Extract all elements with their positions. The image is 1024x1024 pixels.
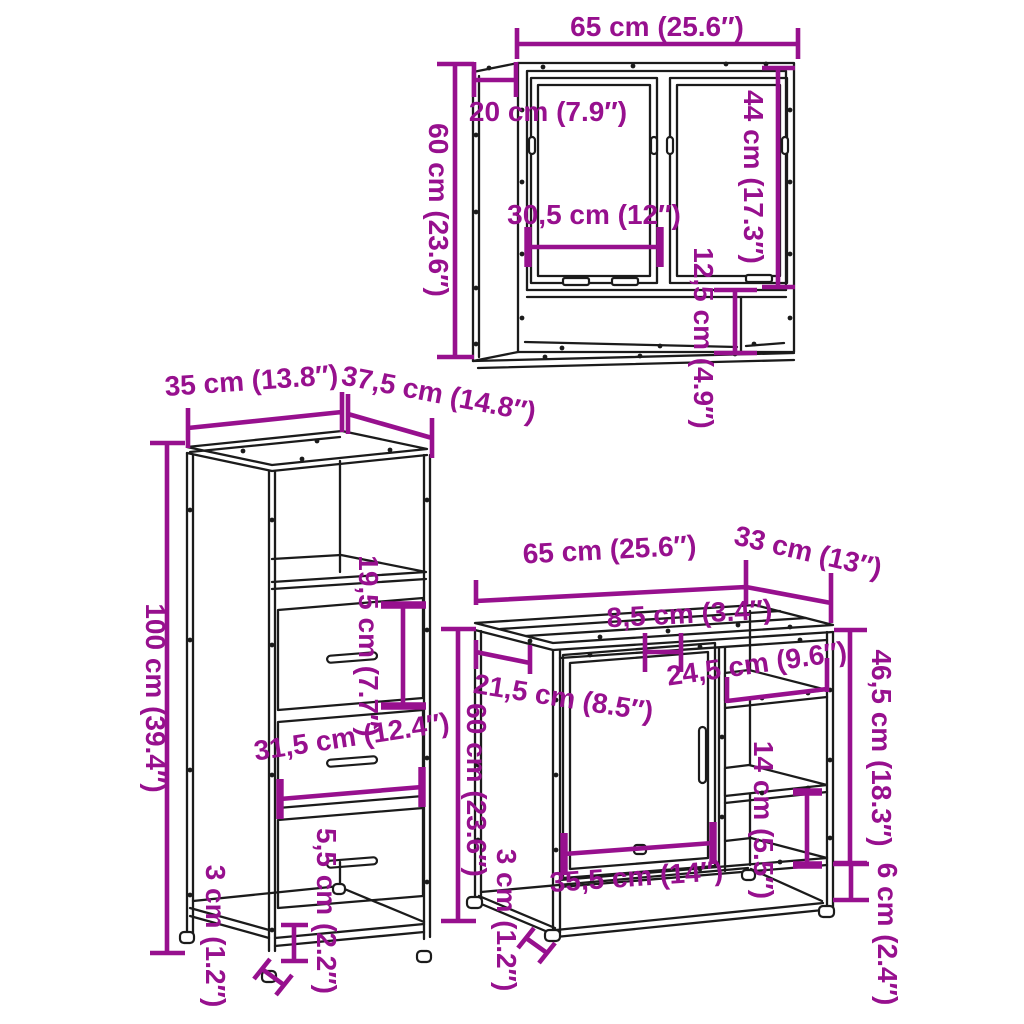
- mirror-shelf-height-label: 12,5 cm (4.9″): [688, 247, 719, 429]
- door-handle: [699, 727, 706, 783]
- sink-base-clearance-label: 6 cm (2.4″): [872, 863, 903, 1006]
- mirror-door-height-label: 44 cm (17.3″): [738, 90, 769, 264]
- sink-cabinet: 65 cm (25.6″) 33 cm (13″) 8,5 cm (3.4″) …: [441, 520, 903, 1006]
- mirror-depth-label: 20 cm (7.9″): [469, 96, 627, 127]
- sink-top-cutout-label: 8,5 cm (3.4″): [606, 594, 773, 634]
- door-handle: [651, 137, 657, 154]
- sink-foot-height-dimension: 3 cm (1.2″): [491, 849, 555, 992]
- tall-foot-height-label: 3 cm (1.2″): [200, 865, 231, 1008]
- sink-width-dimension: 65 cm (25.6″): [476, 529, 746, 605]
- tall-width-label: 35 cm (13.8″): [164, 359, 339, 402]
- mirror-cabinet: 65 cm (25.6″) 20 cm (7.9″) 60 cm (23.6″)…: [423, 11, 798, 429]
- sink-width-label: 65 cm (25.6″): [522, 529, 697, 569]
- tall-height-dimension: 100 cm (39.4″): [140, 443, 185, 953]
- mirror-width-dimension: 65 cm (25.6″): [517, 11, 798, 59]
- sink-height-label: 60 cm (23.6″): [461, 703, 492, 877]
- tall-depth-dimension: 37,5 cm (14.8″): [339, 360, 538, 458]
- sink-shelf-spacing-dimension: 14 cm (5.5″): [748, 741, 822, 899]
- tall-base-clearance-dimension: 5,5 cm (2.2″): [281, 828, 342, 994]
- tall-base-clearance-label: 5,5 cm (2.2″): [311, 828, 342, 994]
- sink-door-width-dimension: 35,5 cm (14″): [549, 822, 724, 898]
- tall-depth-label: 37,5 cm (14.8″): [339, 360, 538, 428]
- sink-depth-label: 33 cm (13″): [731, 520, 885, 584]
- drawer-handle: [327, 756, 377, 767]
- cabinet-foot: [417, 951, 431, 962]
- sink-door-width-label: 35,5 cm (14″): [549, 855, 724, 898]
- cabinet-foot: [819, 906, 834, 917]
- tall-drawer-height-label: 19,5 cm (7.7″): [353, 555, 384, 737]
- sink-open-section-height-label: 46,5 cm (18.3″): [866, 649, 897, 846]
- screw-dots: [188, 439, 430, 933]
- door-hinge: [529, 137, 535, 154]
- mirror-height-label: 60 cm (23.6″): [423, 123, 454, 297]
- mirror-height-dimension: 60 cm (23.6″): [423, 64, 474, 357]
- tall-height-label: 100 cm (39.4″): [140, 603, 171, 792]
- cabinet-foot: [545, 930, 560, 941]
- mirror-door-width-dimension: 30,5 cm (12″): [507, 199, 681, 267]
- sink-foot-height-label: 3 cm (1.2″): [491, 849, 522, 992]
- mirror-door-width-label: 30,5 cm (12″): [507, 199, 681, 230]
- mirror-width-label: 65 cm (25.6″): [570, 11, 744, 42]
- diagram-canvas: 65 cm (25.6″) 20 cm (7.9″) 60 cm (23.6″)…: [0, 0, 1024, 1024]
- sink-base-clearance-dimension: 6 cm (2.4″): [833, 863, 903, 1006]
- shelf-clip: [563, 278, 589, 285]
- cabinet-foot: [467, 897, 482, 908]
- shelf-clip: [612, 278, 638, 285]
- cabinet-foot: [180, 932, 194, 943]
- door-hinge: [782, 137, 788, 154]
- shelf-clip: [746, 275, 772, 282]
- sink-shelf-spacing-label: 14 cm (5.5″): [748, 741, 779, 899]
- furniture-dimension-diagram: 65 cm (25.6″) 20 cm (7.9″) 60 cm (23.6″)…: [0, 0, 1024, 1024]
- door-handle: [667, 137, 673, 154]
